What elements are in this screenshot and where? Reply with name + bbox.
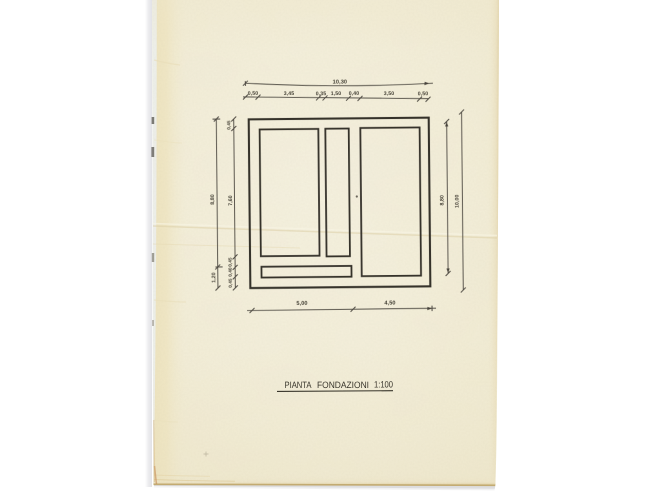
svg-text:10,30: 10,30 — [333, 80, 348, 86]
svg-text:1,20: 1,20 — [211, 272, 217, 283]
svg-text:7,60: 7,60 — [228, 195, 234, 206]
svg-text:4,50: 4,50 — [384, 301, 395, 307]
svg-text:10,00: 10,00 — [455, 194, 461, 208]
svg-text:3,45: 3,45 — [284, 91, 295, 97]
svg-text:0,35: 0,35 — [316, 91, 327, 97]
svg-text:1,50: 1,50 — [331, 91, 342, 97]
svg-text:0,50: 0,50 — [418, 91, 429, 97]
svg-text:PIANTA: PIANTA — [285, 380, 313, 390]
svg-text:3,50: 3,50 — [384, 91, 395, 97]
svg-text:0,40: 0,40 — [349, 91, 360, 97]
svg-text:FONDAZIONI: FONDAZIONI — [317, 380, 369, 390]
svg-text:8,80: 8,80 — [439, 195, 445, 206]
svg-text:8,80: 8,80 — [210, 194, 216, 205]
svg-text:0,45: 0,45 — [228, 278, 233, 288]
svg-text:0,50: 0,50 — [248, 91, 259, 97]
svg-text:5,00: 5,00 — [296, 301, 307, 307]
svg-text:0,40: 0,40 — [228, 267, 233, 277]
svg-text:0,45: 0,45 — [226, 120, 231, 130]
svg-text:1:100: 1:100 — [374, 380, 393, 390]
svg-text:0,45: 0,45 — [228, 257, 233, 267]
